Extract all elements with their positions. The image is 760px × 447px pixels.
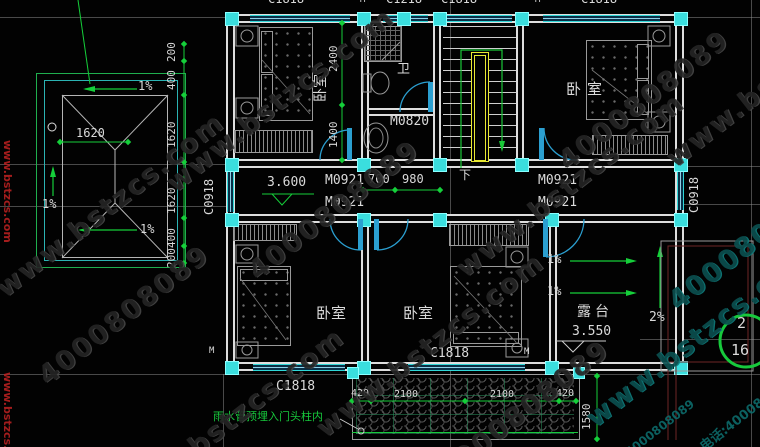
stair-down-label: 下 xyxy=(459,169,471,181)
section-marker: M xyxy=(360,0,365,5)
dim-hall: 980 xyxy=(402,173,424,185)
dim-porch: 2100 xyxy=(490,390,514,400)
door-arc-bath xyxy=(400,82,430,112)
note-leader-circle xyxy=(358,428,364,434)
watermark-text-red: www.bstzcs.com xyxy=(1,372,14,447)
window-label-top-clipped: C1218 xyxy=(386,0,422,5)
level-marker-3600 xyxy=(262,194,314,205)
dim-porch-depth: 1580 xyxy=(581,404,592,431)
dim-chain: 200 xyxy=(166,248,177,268)
roof-datum-circle xyxy=(48,123,56,131)
door-label-m0820: M0820 xyxy=(390,115,429,128)
room-label-bath: 卫 xyxy=(397,63,410,76)
shower-corner xyxy=(382,42,400,60)
toilet xyxy=(371,72,389,94)
bed-blanket-lines xyxy=(240,60,648,342)
arrowhead xyxy=(83,86,95,92)
stair-direction-line xyxy=(461,50,502,168)
dim-roof-width: 1620 xyxy=(76,127,105,139)
dim-porch: 420 xyxy=(556,389,574,399)
dim-chain: 1620 xyxy=(166,188,177,215)
window-label-top-clipped: C1818 xyxy=(441,0,477,5)
dim-hall: 700 xyxy=(368,173,390,185)
room-label-terrace: 露台 xyxy=(577,305,613,319)
slope-label-2pct: 2% xyxy=(649,311,665,324)
room-label-bedroom-bm: 卧室 xyxy=(403,306,433,321)
room-label-bedroom-tr: 卧室 xyxy=(566,82,608,97)
dim-porch: 2100 xyxy=(394,390,418,400)
dim-porch: 420 xyxy=(351,389,369,399)
dim-chain: 1620 xyxy=(166,122,177,149)
leader-line xyxy=(78,0,90,84)
door-label-m0921: M0921 xyxy=(538,196,577,209)
slope-label: 1% xyxy=(547,253,561,265)
door-label-m0921: M0921 xyxy=(325,196,364,209)
arrowhead xyxy=(78,227,90,233)
slope-label: 1% xyxy=(42,198,56,210)
cad-floorplan-canvas: C0918 C0918 C1818 C1218 C1818 C1818 C181… xyxy=(0,0,760,447)
window-label-top-clipped: C1818 xyxy=(268,0,304,5)
dim-chain: 400 xyxy=(166,228,177,248)
door-arc-bed3 xyxy=(330,219,361,250)
dim-room-depth: 1400 xyxy=(328,122,339,149)
arrowhead xyxy=(657,246,663,257)
linework-overlay xyxy=(0,0,760,447)
door-arc-bed2 xyxy=(544,128,576,160)
level-3550: 3.550 xyxy=(572,325,611,338)
rain-pipe-note: 雨水管预埋入门头柱内 xyxy=(213,411,323,422)
window-label-c0918-right: C0918 xyxy=(688,177,700,213)
arrowhead xyxy=(50,166,56,177)
callout-sheet: 16 xyxy=(731,343,749,358)
door-label-m0921: M0921 xyxy=(538,174,577,187)
level-marker-3550 xyxy=(556,341,606,352)
dim-chain: 400 xyxy=(166,70,177,90)
window-label-c1818: C1818 xyxy=(430,347,469,360)
washbasin-bowl xyxy=(369,128,383,148)
window-label-top-clipped: C1818 xyxy=(581,0,617,5)
slope-label: 1% xyxy=(138,80,152,92)
door-arc-bed4 xyxy=(377,219,408,250)
door-label-m0921: M0921 xyxy=(325,174,364,187)
room-label-bedroom-bl: 卧室 xyxy=(316,306,346,321)
slope-label: 1% xyxy=(547,285,561,297)
window-label-c1818: C1818 xyxy=(276,380,315,393)
section-marker: M xyxy=(524,348,529,357)
window-label-c0918-left: C0918 xyxy=(203,179,215,215)
dim-chain: 200 xyxy=(166,42,177,62)
section-marker: M xyxy=(209,347,214,356)
note-leader xyxy=(340,419,358,429)
arrowhead xyxy=(626,290,637,296)
callout-number: 2 xyxy=(737,316,746,331)
level-3600: 3.600 xyxy=(267,176,306,189)
toilet-tank xyxy=(363,74,371,92)
room-label-bedroom-tl: 卧室 xyxy=(314,74,328,102)
section-marker: M xyxy=(535,0,540,5)
arrowhead xyxy=(499,141,505,152)
dim-room-depth: 2400 xyxy=(328,46,339,73)
arrowhead xyxy=(626,258,637,264)
slope-label: 1% xyxy=(140,223,154,235)
watermark-text-red: www.bstzcs.com xyxy=(1,140,14,243)
